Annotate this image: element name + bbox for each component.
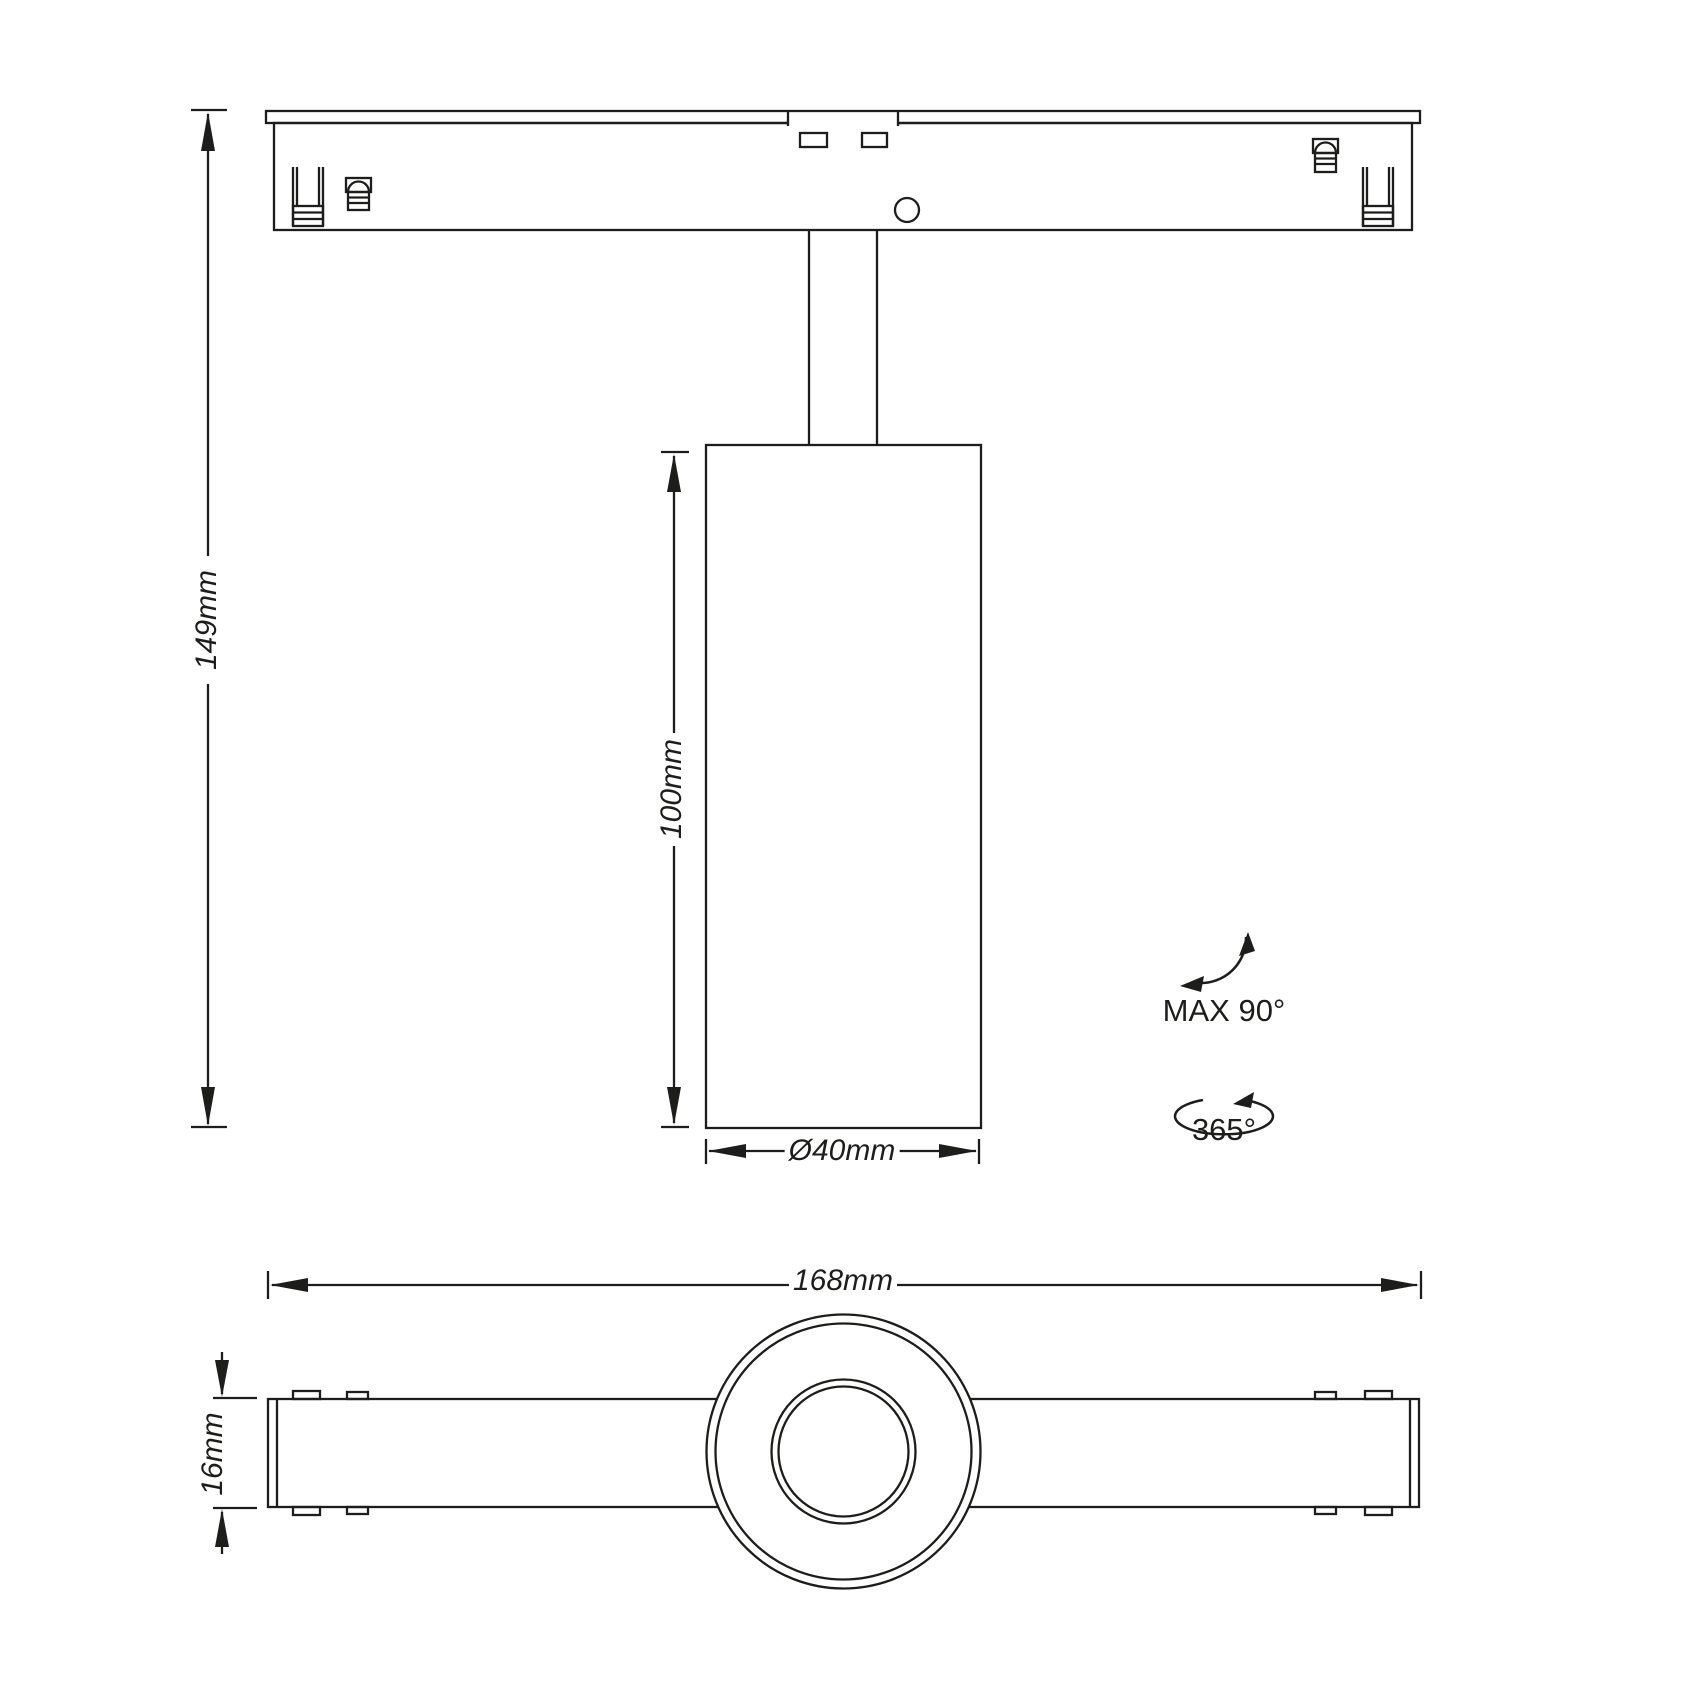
- arrowhead-down: [201, 1087, 215, 1126]
- tilt-limit-label: MAX 90°: [1163, 993, 1286, 1029]
- clip-tab: [293, 1391, 320, 1399]
- knuckle-outer-ring: [707, 1315, 981, 1589]
- spring-contact-left: [346, 178, 371, 210]
- plan-view: [268, 1315, 1419, 1589]
- arrowhead-up: [1239, 932, 1255, 956]
- clip-tab: [1365, 1391, 1392, 1399]
- tilt-arc-arrow: [1199, 937, 1246, 983]
- adapter-housing: [274, 123, 1412, 230]
- screw-hole: [895, 198, 919, 222]
- clip-tab: [293, 1507, 320, 1515]
- connector-tab-left: [800, 133, 827, 147]
- arrowhead-right: [1381, 1278, 1419, 1292]
- arrowhead-left: [1180, 976, 1204, 992]
- arrowhead-down: [215, 1360, 229, 1397]
- arrowhead-up: [201, 112, 215, 151]
- u-clip-left: [293, 167, 323, 226]
- dim-label-body-diameter: Ø40mm: [785, 1134, 900, 1168]
- dim-label-overall-length: 168mm: [789, 1264, 897, 1298]
- arrowhead-left: [270, 1278, 308, 1292]
- clip-tab: [1315, 1507, 1336, 1514]
- dim-label-overall-height: 149mm: [190, 566, 224, 674]
- rotation-limit-label: 365°: [1192, 1112, 1256, 1148]
- u-clip-right: [1363, 167, 1393, 226]
- rotation-annotations: [1175, 932, 1273, 1134]
- stem: [809, 231, 877, 446]
- side-view: [266, 111, 1420, 1128]
- technical-drawing-canvas: 149mm 100mm Ø40mm MAX 90° 365° 168mm 16m…: [0, 0, 1700, 1700]
- dim-label-track-width: 16mm: [196, 1408, 230, 1499]
- dim-label-body-height: 100mm: [655, 735, 689, 843]
- clip-tab: [347, 1392, 368, 1399]
- arrowhead-rotation: [1233, 1092, 1254, 1108]
- arrowhead-up: [667, 454, 681, 492]
- arrowhead-down: [667, 1087, 681, 1125]
- clip-tab: [1315, 1392, 1336, 1399]
- clip-tab: [1365, 1507, 1392, 1515]
- arrowhead-up: [215, 1509, 229, 1547]
- arrowhead-right: [939, 1144, 977, 1158]
- lamp-body: [706, 445, 981, 1128]
- track-spotlight-dimensional-drawing: [0, 0, 1700, 1700]
- spring-contact-right: [1313, 139, 1338, 172]
- clip-tab: [347, 1507, 368, 1514]
- arrowhead-left: [708, 1144, 746, 1158]
- connector-tab-right: [862, 133, 887, 147]
- strip-gap: [788, 120, 898, 126]
